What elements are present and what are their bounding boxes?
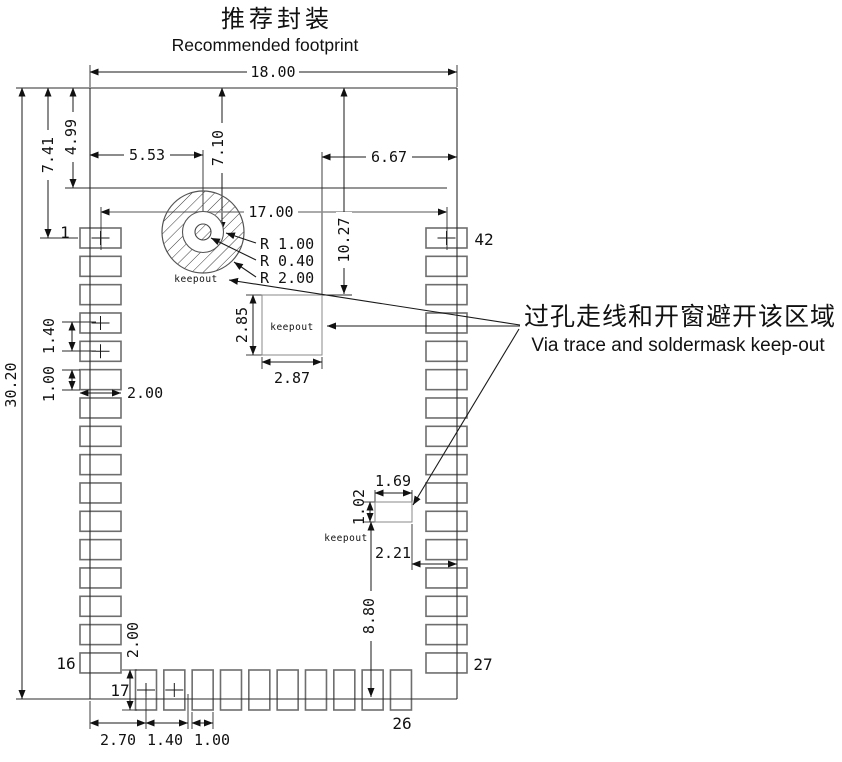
dim-center-keepout-w: 2.87 <box>274 369 310 387</box>
footprint-drawing: 18.00 5.53 6.67 17.00 2.87 1.69 2.21 2.7… <box>0 0 842 762</box>
callout-en: Via trace and soldermask keep-out <box>531 335 825 356</box>
pad <box>80 625 121 645</box>
small-keepout-area <box>375 502 412 522</box>
via-hole <box>195 224 211 240</box>
title-en: Recommended footprint <box>172 35 359 55</box>
dim-small-keepout-w: 1.69 <box>375 472 411 490</box>
center-keepout-label: keepout <box>270 322 314 333</box>
pad <box>80 568 121 588</box>
pad <box>426 540 467 560</box>
dim-small-keepout-to-bottom: 8.80 <box>360 598 378 634</box>
dim-bottom-pad-h: 2.00 <box>124 622 142 658</box>
pad <box>305 670 326 710</box>
footprint-diagram: 18.00 5.53 6.67 17.00 2.87 1.69 2.21 2.7… <box>0 0 842 762</box>
pad <box>192 670 213 710</box>
pad <box>249 670 270 710</box>
pad <box>80 483 121 503</box>
dim-overall-height: 30.20 <box>2 362 20 407</box>
pin-42-label: 42 <box>474 230 493 249</box>
dim-via-keepout-radius: R 2.00 <box>260 269 314 287</box>
dim-top-to-antenna: 4.99 <box>62 119 80 155</box>
pad <box>426 285 467 305</box>
via-keepout-label: keepout <box>174 274 218 285</box>
pad <box>80 540 121 560</box>
pad <box>426 370 467 390</box>
pad <box>426 596 467 616</box>
pad <box>80 596 121 616</box>
pad <box>80 653 121 673</box>
pad <box>426 455 467 475</box>
pad <box>80 285 121 305</box>
small-keepout-label: keepout <box>324 533 368 544</box>
dim-via-hole-radius: R 0.40 <box>260 252 314 270</box>
pad <box>80 455 121 475</box>
dim-edge-to-first-bottom-pad: 2.70 <box>100 731 136 749</box>
dim-top-to-center-keepout: 10.27 <box>335 217 353 262</box>
pad <box>390 670 411 710</box>
pad <box>80 256 121 276</box>
dim-via-offset-x: 5.53 <box>129 146 165 164</box>
pad <box>362 670 383 710</box>
dim-via-offset-y: 7.10 <box>209 130 227 166</box>
pin-27-label: 27 <box>473 655 492 674</box>
dim-keepout-to-right: 6.67 <box>371 148 407 166</box>
dim-pad-span: 17.00 <box>248 203 293 221</box>
pad <box>426 426 467 446</box>
dim-bottom-pitch: 1.40 <box>147 731 183 749</box>
via-keepout-circle <box>162 191 244 273</box>
pad <box>426 341 467 361</box>
dim-side-pad-w: 2.00 <box>127 384 163 402</box>
dim-small-keepout-h: 1.02 <box>350 489 368 525</box>
pad <box>80 370 121 390</box>
dim-bottom-pad-w: 1.00 <box>194 731 230 749</box>
title-zh: 推荐封装 <box>221 5 333 33</box>
pin-1-label: 1 <box>60 223 70 242</box>
pad <box>426 568 467 588</box>
pad <box>426 625 467 645</box>
pin-26-label: 26 <box>392 714 411 733</box>
pad <box>426 511 467 531</box>
pad <box>80 398 121 418</box>
leader-lines <box>211 233 520 505</box>
callout-zh: 过孔走线和开窗避开该区域 <box>524 302 836 331</box>
pad <box>426 653 467 673</box>
dimension-labels: 18.00 5.53 6.67 17.00 2.87 1.69 2.21 2.7… <box>100 63 411 749</box>
pad <box>277 670 298 710</box>
dim-side-pad-h: 1.00 <box>40 366 58 402</box>
pad <box>80 511 121 531</box>
dim-side-pad-pitch: 1.40 <box>40 318 58 354</box>
pin-17-label: 17 <box>110 681 129 700</box>
pad <box>334 670 355 710</box>
pad <box>426 398 467 418</box>
pad <box>220 670 241 710</box>
pin-16-label: 16 <box>56 654 75 673</box>
pad <box>426 256 467 276</box>
pad <box>80 426 121 446</box>
dim-center-keepout-h: 2.85 <box>233 307 251 343</box>
dim-small-keepout-to-edge: 2.21 <box>375 544 411 562</box>
dim-via-pad-radius: R 1.00 <box>260 235 314 253</box>
dim-overall-width: 18.00 <box>250 63 295 81</box>
dim-top-to-pin1: 7.41 <box>39 137 57 173</box>
pad <box>426 483 467 503</box>
